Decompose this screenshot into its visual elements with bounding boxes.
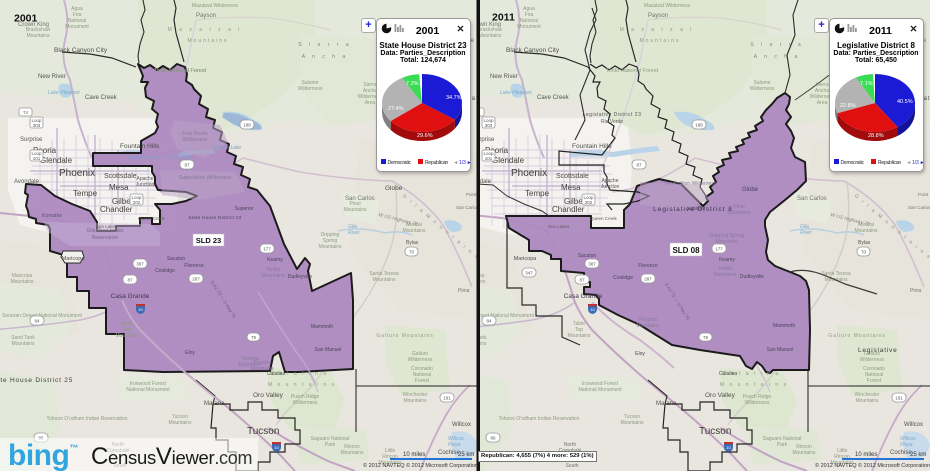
svg-text:Reservation: Reservation <box>92 235 119 241</box>
svg-text:27.4%: 27.4% <box>388 106 404 112</box>
svg-text:Komatke: Komatke <box>42 213 62 219</box>
svg-text:Wilderness: Wilderness <box>183 137 208 143</box>
svg-text:Casa Grande: Casa Grande <box>111 293 150 300</box>
svg-text:Coolidge: Coolidge <box>613 275 633 281</box>
svg-text:Saguaro Lake - Canyon Lake: Saguaro Lake - Canyon Lake <box>127 155 192 161</box>
svg-text:Sacaton: Sacaton <box>167 256 186 262</box>
svg-text:Junction: Junction <box>136 182 155 188</box>
svg-text:Mountains: Mountains <box>636 323 660 329</box>
svg-text:Legislative: Legislative <box>858 347 898 354</box>
svg-text:Apache Lake: Apache Lake <box>211 145 241 151</box>
svg-text:San Manuel: San Manuel <box>315 347 342 353</box>
svg-text:Mammoth: Mammoth <box>773 323 795 329</box>
svg-text:SLD 08: SLD 08 <box>672 246 700 255</box>
svg-text:Eloy: Eloy <box>635 351 645 357</box>
svg-text:7.2%: 7.2% <box>406 81 419 87</box>
svg-text:Mountains: Mountains <box>713 272 737 278</box>
svg-text:Coolidge: Coolidge <box>155 268 175 274</box>
svg-text:Junction: Junction <box>601 184 620 190</box>
svg-text:Florence: Florence <box>184 263 204 269</box>
svg-text:Sacaton: Sacaton <box>578 253 597 259</box>
svg-text:State House District 23: State House District 23 <box>189 215 242 220</box>
svg-text:Kearny: Kearny <box>267 257 283 263</box>
svg-text:Superstition Wilderness: Superstition Wilderness <box>179 175 232 181</box>
svg-text:Mountains: Mountains <box>715 239 739 245</box>
svg-text:Dudleyville: Dudleyville <box>740 274 764 280</box>
svg-text:Mountains: Mountains <box>318 244 342 250</box>
svg-text:Dudleyville: Dudleyville <box>288 274 312 280</box>
svg-text:Mammoth: Mammoth <box>311 324 333 330</box>
svg-text:SLD 23: SLD 23 <box>196 236 221 245</box>
svg-text:Rio Verde: Rio Verde <box>601 119 623 125</box>
svg-text:29.6%: 29.6% <box>417 133 433 139</box>
svg-text:40.5%: 40.5% <box>897 99 913 105</box>
svg-text:Mountains: Mountains <box>238 362 262 368</box>
svg-text:Globe: Globe <box>742 187 759 193</box>
svg-text:Kearny: Kearny <box>719 257 735 263</box>
svg-text:2011: 2011 <box>492 12 515 24</box>
svg-text:22.8%: 22.8% <box>840 103 856 109</box>
svg-text:7.1%: 7.1% <box>860 81 873 87</box>
svg-text:2001: 2001 <box>14 13 38 25</box>
svg-text:34.7%: 34.7% <box>446 95 462 101</box>
svg-text:Legislative District 8: Legislative District 8 <box>653 206 733 213</box>
svg-text:ate House District 25: ate House District 25 <box>0 377 73 384</box>
svg-text:Mountains: Mountains <box>343 207 367 213</box>
svg-text:Superior: Superior <box>235 206 254 212</box>
svg-text:Mountains: Mountains <box>261 273 285 279</box>
svg-text:Casa Grande: Casa Grande <box>564 293 603 300</box>
svg-text:Gila River Indian: Gila River Indian <box>87 228 124 234</box>
svg-text:Florence: Florence <box>638 263 658 269</box>
svg-text:Legislative District 23: Legislative District 23 <box>583 112 642 118</box>
svg-text:Globe: Globe <box>385 185 403 192</box>
svg-text:347: 347 <box>525 271 533 276</box>
svg-text:San Manuel: San Manuel <box>767 347 794 353</box>
svg-text:Eloy: Eloy <box>185 350 195 356</box>
svg-text:28.8%: 28.8% <box>868 133 884 139</box>
